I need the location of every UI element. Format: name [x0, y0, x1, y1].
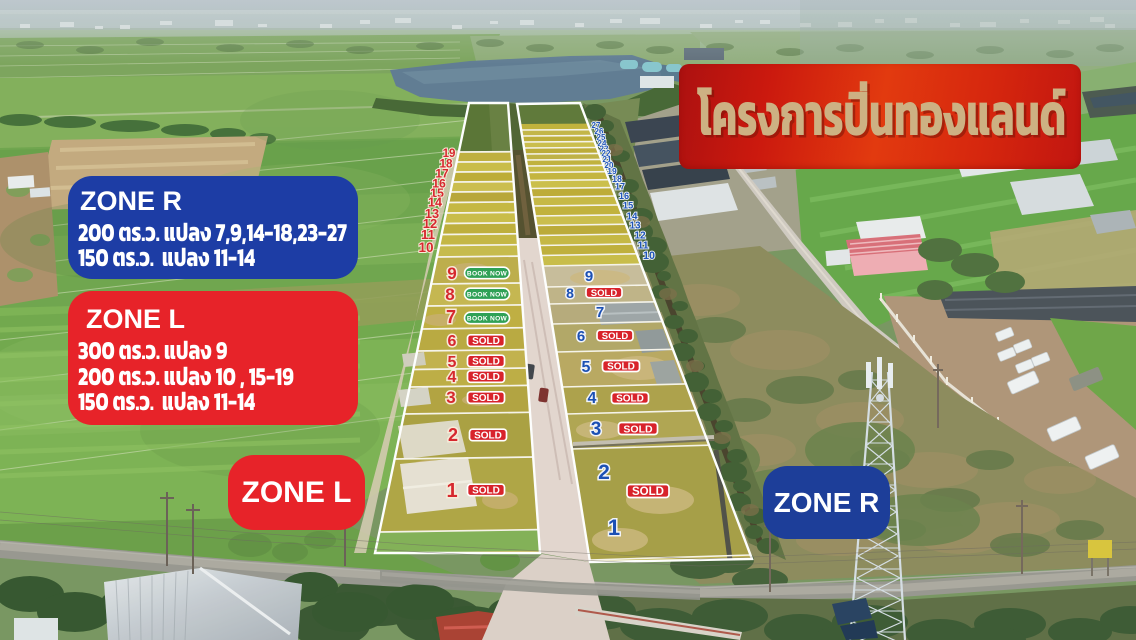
svg-text:4: 4	[448, 369, 457, 386]
svg-text:15: 15	[623, 201, 634, 212]
svg-text:BOOK NOW: BOOK NOW	[467, 291, 508, 298]
svg-text:7: 7	[596, 304, 604, 321]
svg-text:9: 9	[585, 268, 593, 285]
svg-text:7: 7	[446, 307, 456, 327]
svg-text:1: 1	[608, 515, 620, 540]
svg-text:4: 4	[588, 390, 597, 407]
svg-text:6: 6	[577, 328, 585, 345]
svg-text:SOLD: SOLD	[616, 394, 644, 405]
svg-text:2: 2	[598, 461, 610, 484]
svg-text:ZONE L: ZONE L	[86, 304, 185, 334]
svg-text:10: 10	[418, 240, 433, 255]
svg-text:SOLD: SOLD	[607, 362, 635, 373]
svg-text:SOLD: SOLD	[623, 423, 653, 435]
svg-text:2: 2	[448, 425, 458, 445]
svg-text:3: 3	[446, 388, 455, 407]
svg-text:17: 17	[615, 182, 625, 192]
svg-text:SOLD: SOLD	[474, 431, 502, 442]
svg-text:SOLD: SOLD	[472, 372, 500, 383]
svg-text:SOLD: SOLD	[472, 357, 500, 368]
svg-text:1: 1	[446, 480, 457, 502]
svg-text:BOOK NOW: BOOK NOW	[467, 315, 508, 322]
svg-text:3: 3	[591, 419, 602, 440]
svg-text:BOOK NOW: BOOK NOW	[467, 270, 508, 277]
svg-text:5: 5	[582, 359, 591, 376]
svg-text:SOLD: SOLD	[472, 486, 500, 497]
svg-text:SOLD: SOLD	[632, 486, 664, 498]
svg-text:ZONE R: ZONE R	[80, 186, 182, 216]
svg-text:10: 10	[643, 250, 655, 262]
svg-text:SOLD: SOLD	[472, 336, 500, 347]
svg-text:8: 8	[566, 285, 574, 301]
svg-text:8: 8	[445, 285, 454, 304]
svg-text:9: 9	[447, 264, 456, 283]
svg-text:SOLD: SOLD	[602, 331, 629, 342]
svg-text:6: 6	[448, 333, 457, 350]
svg-text:SOLD: SOLD	[591, 288, 618, 299]
svg-text:SOLD: SOLD	[472, 393, 500, 404]
svg-text:16: 16	[619, 191, 629, 201]
